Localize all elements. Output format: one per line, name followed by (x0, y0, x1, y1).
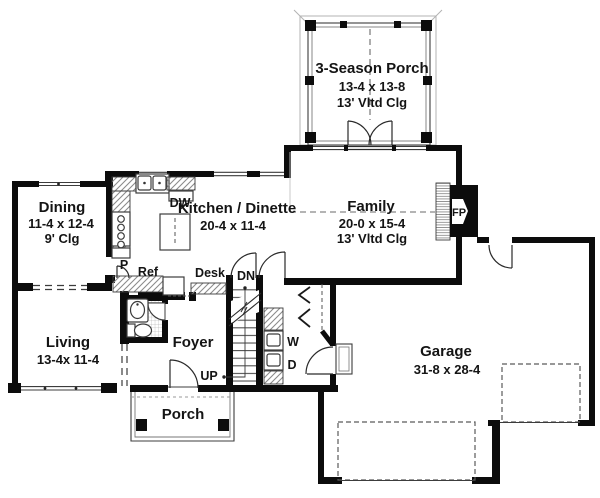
wall-segment (589, 237, 595, 426)
sink-drain (143, 182, 146, 185)
room-label-porch: Porch (162, 406, 205, 423)
room-dim-living: 13-4x 11-4 (37, 352, 100, 367)
wall-segment (477, 237, 489, 243)
wall-segment (87, 283, 112, 291)
wall-segment (330, 278, 336, 346)
floor-plan: 3-Season Porch 13-4 x 13-8 13' Vltd Clg (0, 0, 600, 498)
desk-counter (191, 283, 226, 294)
wall-segment (8, 383, 21, 393)
wall-segment (162, 320, 168, 343)
wall-segment (344, 145, 348, 151)
wall-segment (492, 420, 500, 484)
room-label-garage: Garage (420, 343, 472, 360)
powder-room (127, 299, 165, 337)
floor-plan-drawing: 3-Season Porch 13-4 x 13-8 13' Vltd Clg (0, 0, 600, 498)
washer-inner (267, 334, 280, 346)
window-mullion-dot (75, 387, 78, 390)
label-dryer: D (287, 358, 296, 372)
wall-segment (198, 385, 232, 392)
room-dim-garage: 31-8 x 28-4 (414, 362, 481, 377)
wall-segment (284, 278, 290, 285)
burner (118, 224, 125, 231)
wall-segment (167, 171, 214, 177)
wall-segment (318, 388, 324, 484)
wall-segment (290, 278, 462, 285)
burner (118, 216, 125, 223)
room-dim-family: 20-0 x 15-4 (339, 216, 406, 231)
fireplace-hearth (436, 183, 450, 240)
wall-segment (105, 171, 139, 177)
wall-segment (330, 374, 336, 392)
burner (118, 233, 125, 240)
toilet-tank (127, 324, 135, 337)
label-refrigerator: Ref (138, 265, 159, 279)
label-stairs-up: UP (200, 369, 217, 383)
wall-segment (456, 145, 462, 186)
porch-post (136, 419, 147, 431)
label-pantry: P (120, 258, 128, 272)
counter-dw (167, 177, 195, 190)
label-washer: W (287, 335, 299, 349)
window-mullion-dot (44, 387, 47, 390)
label-dishwasher: DW (170, 196, 191, 210)
wall-segment (130, 385, 168, 392)
oven (112, 248, 130, 258)
room-clg-porch3: 13' Vltd Clg (337, 95, 407, 110)
wall-segment (512, 237, 595, 243)
wall-segment (12, 181, 39, 187)
counter-corner (112, 177, 137, 191)
wall-segment (226, 275, 233, 392)
label-fireplace: FP (452, 207, 466, 219)
wall-segment (284, 145, 313, 151)
wall-segment (392, 145, 396, 151)
room-label-living: Living (46, 334, 90, 351)
laundry-counter-bottom (264, 371, 283, 384)
toilet-bowl (135, 324, 152, 337)
fireplace: FP (436, 183, 478, 240)
room-clg-family: 13' Vltd Clg (337, 231, 407, 246)
walk-line-dot-dn (243, 286, 246, 289)
room-label-porch3: 3-Season Porch (315, 60, 428, 77)
room-label-kitchen: Kitchen / Dinette (178, 200, 296, 217)
wall-segment (106, 181, 112, 257)
room-label-foyer: Foyer (173, 334, 214, 351)
wall-segment (456, 237, 462, 283)
walk-line-dot-up (222, 375, 225, 378)
wall-segment (488, 420, 500, 426)
room-dim-porch3: 13-4 x 13-8 (339, 79, 406, 94)
room-label-family: Family (347, 198, 395, 215)
sink-drain (158, 182, 161, 185)
label-stairs-down: DN (237, 269, 255, 283)
room-dim-dining: 11-4 x 12-4 (28, 216, 95, 231)
wall-segment (101, 383, 117, 393)
wall-segment (122, 337, 168, 343)
wall-segment (12, 283, 33, 291)
label-desk: Desk (195, 266, 225, 280)
porch-post (218, 419, 229, 431)
wall-segment (247, 171, 260, 177)
room-clg-dining: 9' Clg (45, 231, 80, 246)
burner (118, 241, 125, 248)
room-label-dining: Dining (39, 199, 86, 216)
window-mullion-dot (57, 183, 60, 186)
faucet-dot (136, 303, 138, 305)
refrigerator (163, 277, 184, 295)
laundry-counter-top (264, 308, 283, 330)
room-dim-kitchen: 20-4 x 11-4 (200, 218, 267, 233)
dryer-inner (267, 354, 280, 366)
